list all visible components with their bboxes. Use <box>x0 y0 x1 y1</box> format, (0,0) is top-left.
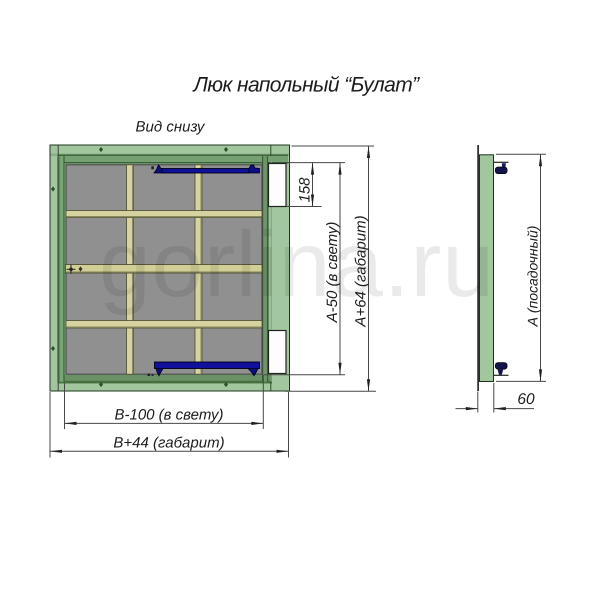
svg-text:А (посадочный): А (посадочный) <box>525 226 541 328</box>
svg-text:60: 60 <box>517 391 535 408</box>
svg-text:Вид снизу: Вид снизу <box>136 119 206 136</box>
svg-text:158: 158 <box>297 177 314 203</box>
svg-text:gorlina.ru: gorlina.ru <box>99 212 495 316</box>
svg-text:В+44 (габарит): В+44 (габарит) <box>113 435 224 452</box>
svg-text:Люк напольный “Булат”: Люк напольный “Булат” <box>192 74 421 97</box>
svg-text:В-100 (в свету): В-100 (в свету) <box>114 407 223 424</box>
